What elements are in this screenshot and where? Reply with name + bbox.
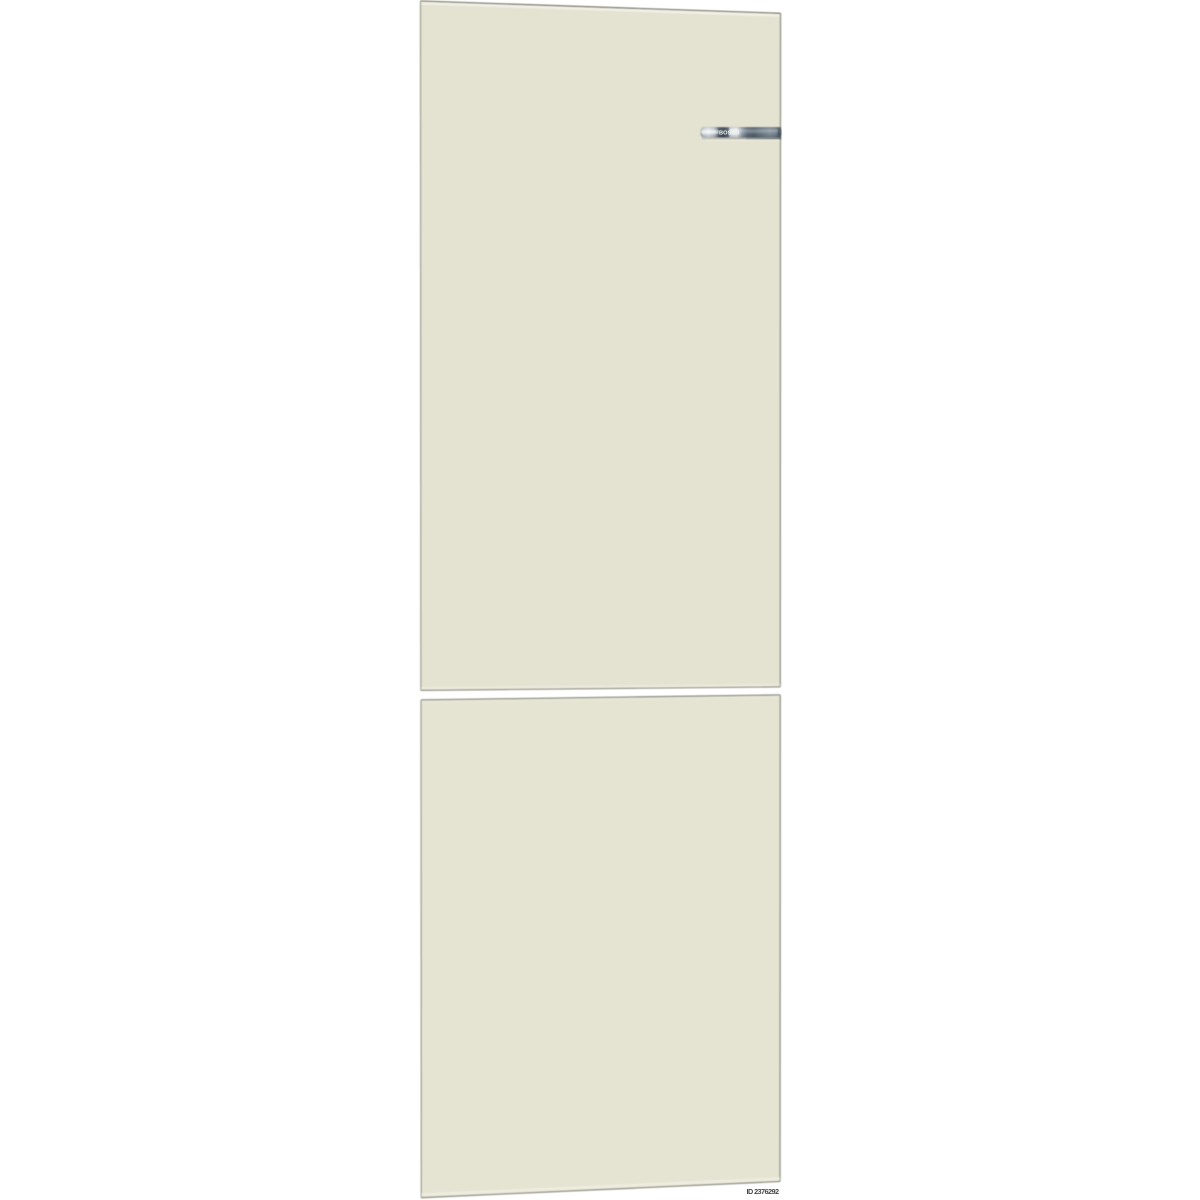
svg-text:BOSCH: BOSCH	[719, 130, 740, 136]
svg-text:ID 2376292: ID 2376292	[747, 1187, 780, 1196]
